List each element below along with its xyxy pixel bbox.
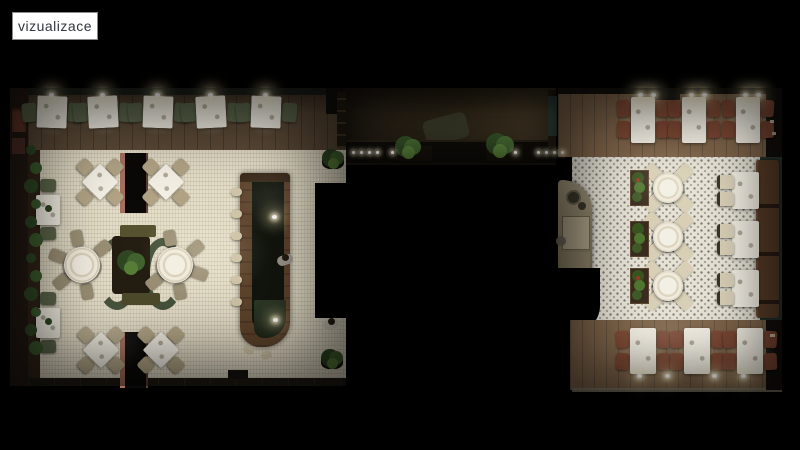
round-table xyxy=(653,222,683,252)
dining-chair xyxy=(79,283,94,301)
wall-plant xyxy=(25,216,37,228)
dining-chair xyxy=(761,121,775,139)
dining-chair xyxy=(706,100,720,118)
door-panel xyxy=(548,96,557,136)
table-tablecloth xyxy=(36,95,67,128)
wall-plant xyxy=(24,287,38,301)
spot-light xyxy=(561,151,564,154)
wall-plant xyxy=(25,324,37,336)
lamp-glow xyxy=(651,93,656,97)
round-table xyxy=(653,271,683,301)
bar-stool xyxy=(231,210,242,218)
counter-sink xyxy=(578,202,586,210)
wall-sign-dark xyxy=(12,138,25,154)
left-west-wall xyxy=(10,88,28,386)
lamp-glow xyxy=(100,93,105,97)
dining-chair xyxy=(615,331,629,349)
table-tablecloth xyxy=(142,95,173,128)
dining-chair xyxy=(21,102,38,122)
planter-flower xyxy=(636,178,640,182)
lamp-glow xyxy=(756,93,761,97)
dining-chair xyxy=(760,100,774,118)
person-head xyxy=(328,318,335,325)
spot-light xyxy=(545,151,548,154)
round-table xyxy=(64,247,100,283)
dining-chair xyxy=(657,353,671,371)
shelf-item xyxy=(770,120,774,123)
lamp-glow xyxy=(702,93,707,97)
column xyxy=(120,153,148,213)
bar-stool xyxy=(231,298,242,306)
table-tablecloth xyxy=(631,97,655,143)
table-tablecloth xyxy=(195,95,227,129)
lamp-glow xyxy=(689,93,694,97)
lamp-glow xyxy=(263,93,268,97)
dining-chair xyxy=(72,102,89,122)
bar-stool xyxy=(231,188,242,196)
right-edge-wall xyxy=(782,88,790,395)
sidewalk-edge xyxy=(572,388,782,392)
dining-chair xyxy=(669,331,683,349)
counter-panel xyxy=(562,216,590,250)
table-tablecloth xyxy=(87,95,119,129)
dining-chair xyxy=(668,121,682,139)
dining-chair xyxy=(616,353,630,371)
lamp-glow xyxy=(208,93,213,97)
booth-chair xyxy=(717,273,734,287)
planter-table xyxy=(122,293,160,305)
spot-light xyxy=(352,151,355,154)
spot-light xyxy=(391,151,394,154)
booth-chair xyxy=(717,224,734,238)
planter-plant xyxy=(632,243,642,253)
wall-plant xyxy=(29,233,43,247)
dining-chair xyxy=(722,121,736,139)
dining-chair xyxy=(127,102,144,122)
booth-sofa-band xyxy=(756,160,779,318)
spot-light xyxy=(514,151,517,154)
wall-plant xyxy=(30,270,42,282)
booth-chair xyxy=(717,192,734,206)
dining-chair xyxy=(235,102,252,122)
lamp-glow xyxy=(665,374,670,378)
dining-chair xyxy=(172,283,187,301)
dining-chair xyxy=(764,353,778,371)
planter-table xyxy=(120,225,156,237)
bar-stool xyxy=(231,276,242,284)
visualization-label-text: vizualizace xyxy=(18,18,92,34)
dining-chair xyxy=(180,102,197,122)
floor-mat xyxy=(228,370,248,379)
lamp-glow xyxy=(743,93,748,97)
planter-flower xyxy=(636,276,640,280)
booth-chair xyxy=(717,291,734,305)
corner-plant xyxy=(328,158,339,169)
wall-plant xyxy=(29,341,43,355)
bar-stool xyxy=(231,254,242,262)
dining-chair xyxy=(616,100,630,118)
lamp-glow xyxy=(638,93,643,97)
lamp-glow xyxy=(273,318,278,322)
dining-chair xyxy=(617,121,631,139)
service-void xyxy=(315,183,347,318)
booth-chair xyxy=(717,241,734,255)
booth-table xyxy=(732,172,759,209)
table-tablecloth xyxy=(736,97,760,143)
wall-plant xyxy=(31,199,41,209)
lamp-glow xyxy=(741,374,746,378)
booth-table xyxy=(732,270,759,307)
round-table xyxy=(653,173,683,203)
table-tablecloth xyxy=(684,328,710,374)
lamp-glow xyxy=(272,215,277,219)
lamp-glow xyxy=(637,374,642,378)
planter-plant xyxy=(632,192,642,202)
table-plant-pot xyxy=(45,205,52,212)
corridor-plant xyxy=(402,146,415,159)
dining-chair xyxy=(721,100,735,118)
dining-chair xyxy=(40,179,56,193)
wall-plant xyxy=(26,145,36,155)
lamp-glow xyxy=(155,93,160,97)
wall-plant xyxy=(26,253,36,263)
table-tablecloth xyxy=(737,328,763,374)
lamp-glow xyxy=(49,93,54,97)
visualization-canvas: vizualizace xyxy=(0,0,800,450)
person-head xyxy=(282,254,289,261)
planter-plant xyxy=(632,290,642,300)
wall-plant xyxy=(30,162,42,174)
dining-chair xyxy=(667,100,681,118)
table-tablecloth xyxy=(630,328,656,374)
spot-light xyxy=(553,151,556,154)
table-plant-pot xyxy=(45,318,52,325)
corner-plant xyxy=(327,358,338,369)
counter-stool xyxy=(556,236,566,246)
dining-chair xyxy=(40,292,56,306)
wall-plant xyxy=(24,179,38,193)
dining-chair xyxy=(707,121,721,139)
visualization-label: vizualizace xyxy=(12,12,98,40)
dining-chair xyxy=(723,353,737,371)
left-bottom-wood-band xyxy=(28,378,346,386)
shelf-item xyxy=(772,132,776,135)
spot-light xyxy=(537,151,540,154)
wall-plant xyxy=(31,307,41,317)
spot-light xyxy=(360,151,363,154)
table-tablecloth xyxy=(250,95,281,128)
bar-cap xyxy=(240,173,290,182)
booth-chair xyxy=(717,175,734,189)
round-table xyxy=(157,247,193,283)
booth-table xyxy=(732,221,759,258)
lamp-glow xyxy=(712,374,717,378)
dining-chair xyxy=(281,102,298,122)
dining-chair xyxy=(722,331,736,349)
table-tablecloth xyxy=(682,97,706,143)
spot-light xyxy=(376,151,379,154)
shelf-item xyxy=(770,334,775,337)
spot-light xyxy=(368,151,371,154)
banquette-bench xyxy=(28,88,346,95)
dining-chair xyxy=(670,353,684,371)
bar-stool xyxy=(231,232,242,240)
dining-chair xyxy=(656,331,670,349)
